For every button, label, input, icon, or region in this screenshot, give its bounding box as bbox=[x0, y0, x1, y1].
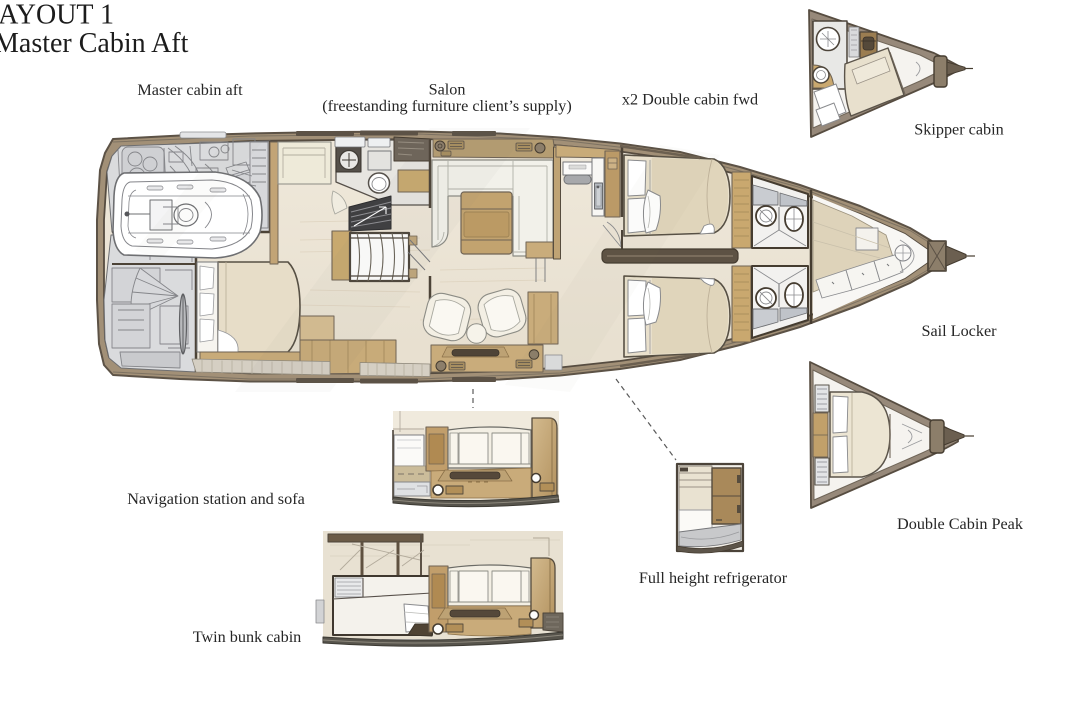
svg-text:Skipper cabin: Skipper cabin bbox=[914, 121, 1003, 139]
svg-text:Full height refrigerator: Full height refrigerator bbox=[639, 569, 788, 587]
svg-text:Master Cabin Aft: Master Cabin Aft bbox=[0, 28, 189, 59]
svg-text:Salon: Salon bbox=[429, 81, 466, 99]
svg-text:LAYOUT 1: LAYOUT 1 bbox=[0, 0, 114, 31]
svg-text:(freestanding furniture client: (freestanding furniture client’s supply) bbox=[322, 97, 571, 115]
svg-text:Double Cabin Peak: Double Cabin Peak bbox=[897, 515, 1024, 533]
svg-text:Twin bunk cabin: Twin bunk cabin bbox=[193, 628, 302, 646]
svg-text:Master cabin aft: Master cabin aft bbox=[137, 81, 243, 99]
svg-text:x2 Double cabin fwd: x2 Double cabin fwd bbox=[622, 90, 758, 108]
svg-text:Sail Locker: Sail Locker bbox=[921, 322, 997, 340]
svg-text:Navigation station and sofa: Navigation station and sofa bbox=[127, 490, 305, 508]
